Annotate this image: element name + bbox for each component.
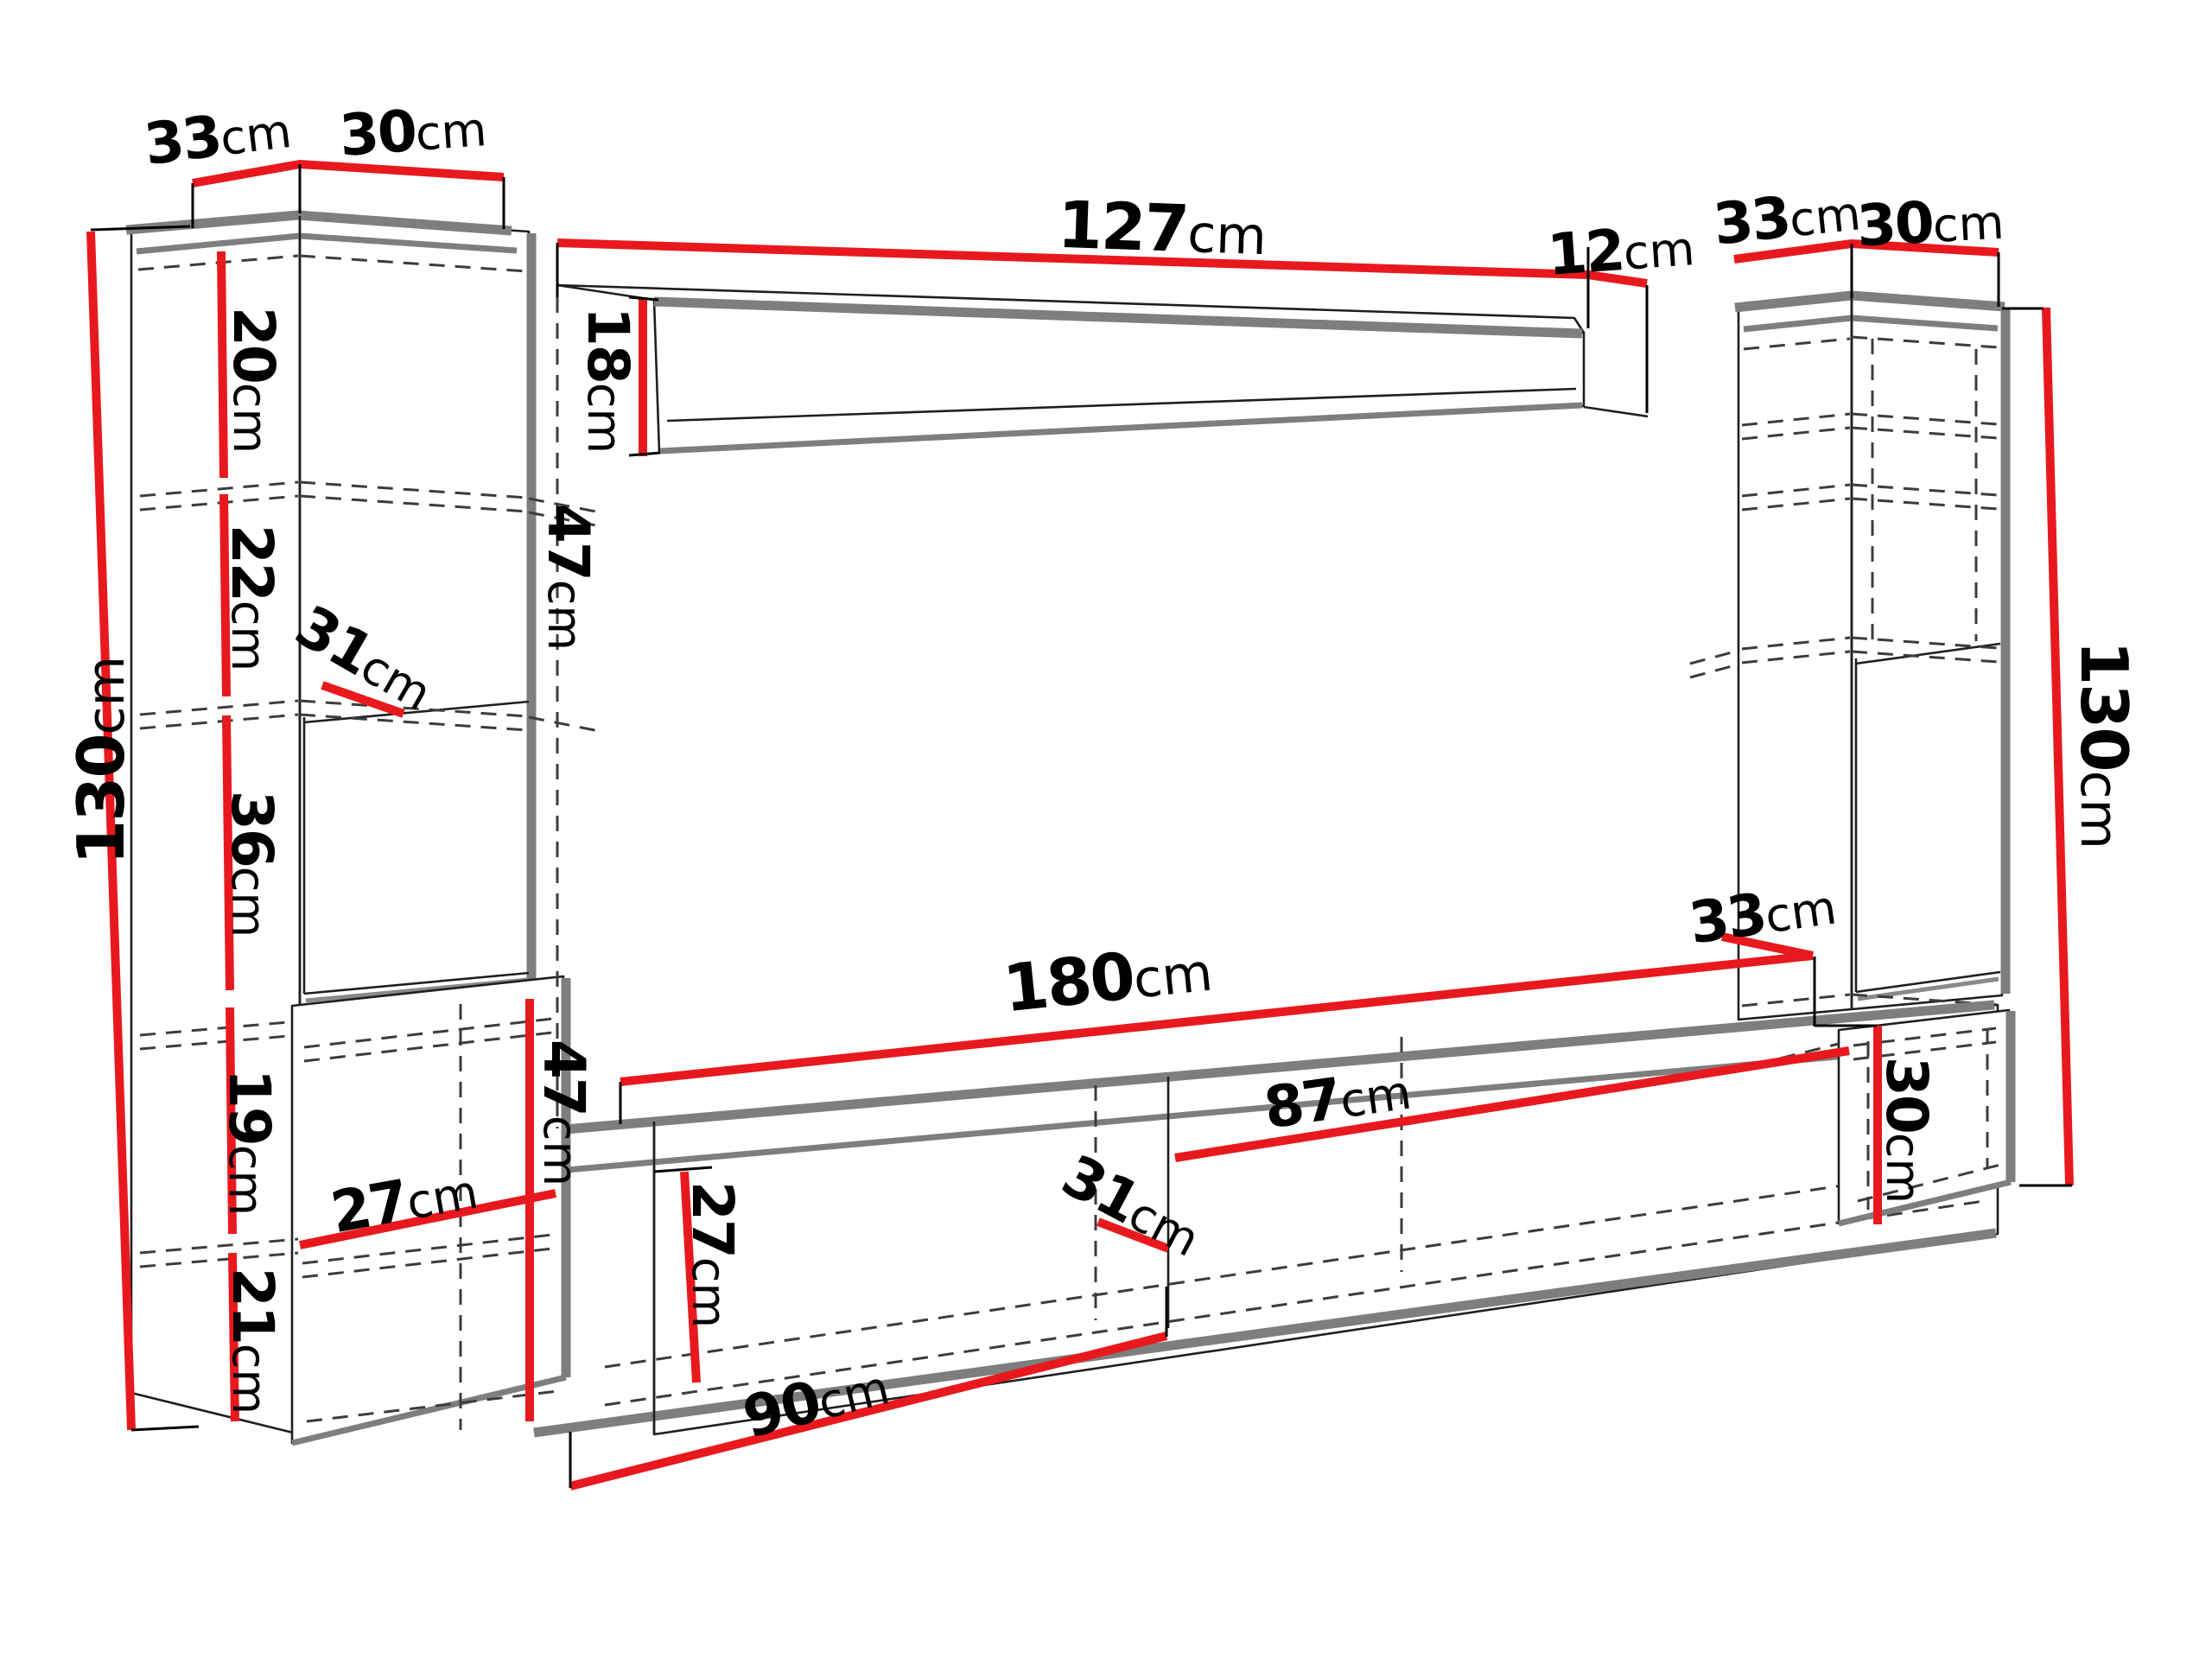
- label-shelf-height-18: 18cm: [575, 307, 641, 454]
- label-left-section-21: 21cm: [219, 1268, 286, 1414]
- label-shelf-clearance-47: 47cm: [535, 504, 601, 651]
- label-left-cabinet-top-width: 30cm: [337, 92, 488, 169]
- label-right-bottom-height-30: 30cm: [1873, 1057, 1940, 1204]
- label-shelf-depth-12: 12cm: [1545, 212, 1696, 289]
- label-right-cabinet-height-130: 130cm: [2066, 640, 2142, 849]
- label-left-section-36: 36cm: [219, 791, 285, 938]
- label-right-cabinet-top-width: 30cm: [1855, 186, 2005, 260]
- label-tv-width-180: 180cm: [1000, 930, 1216, 1027]
- furniture-dimension-diagram: 33cm 30cm 20cm 22cm 31cm 36cm 19cm 27cm …: [0, 0, 2212, 1659]
- label-left-door-height-47: 47cm: [531, 1039, 597, 1186]
- dim-line-right-cabinet-height: [2046, 308, 2069, 1185]
- label-left-cabinet-height-130: 130cm: [63, 656, 139, 865]
- diagram-canvas: 33cm 30cm 20cm 22cm 31cm 36cm 19cm 27cm …: [0, 0, 2212, 1659]
- label-left-section-22: 22cm: [219, 524, 285, 671]
- label-tv-inner-height-27: 27cm: [679, 1181, 746, 1328]
- label-left-section-20: 20cm: [220, 307, 287, 454]
- wall-shelf: [557, 285, 1648, 453]
- label-shelf-width-127: 127cm: [1057, 187, 1268, 270]
- label-left-section-19: 19cm: [216, 1069, 283, 1216]
